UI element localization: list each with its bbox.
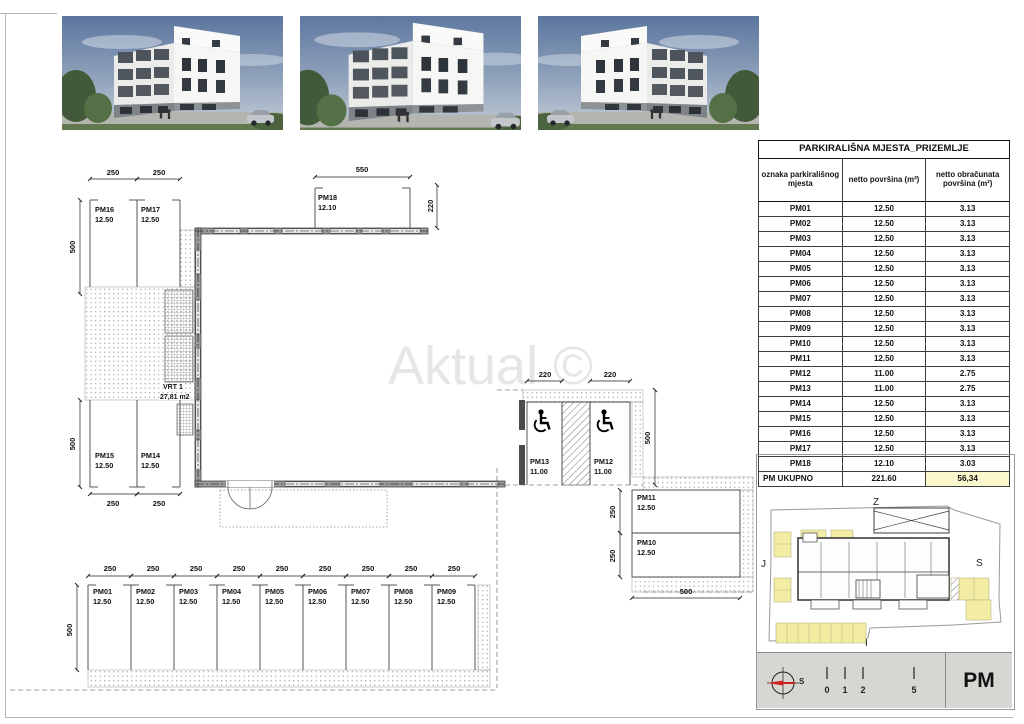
table-row: PM1112.503.13 — [759, 352, 1010, 367]
svg-text:12.10: 12.10 — [318, 203, 336, 212]
col-header-obracunata: netto obračunata površina (m²) — [926, 159, 1010, 202]
table-row: PM1311.002.75 — [759, 382, 1010, 397]
table-cell: 3.13 — [926, 337, 1010, 352]
svg-text:220: 220 — [604, 370, 617, 379]
table-cell: 12.50 — [842, 247, 926, 262]
svg-text:500: 500 — [68, 241, 77, 254]
site-plan: Z J S I — [757, 455, 1012, 652]
svg-text:PM17: PM17 — [141, 205, 160, 214]
svg-text:12.50: 12.50 — [437, 597, 455, 606]
entrance-door — [226, 481, 274, 509]
table-cell: 3.13 — [926, 352, 1010, 367]
svg-text:500: 500 — [68, 438, 77, 451]
svg-text:550: 550 — [356, 165, 369, 174]
svg-text:PM09: PM09 — [437, 587, 456, 596]
svg-text:500: 500 — [65, 624, 74, 637]
svg-text:PM12: PM12 — [594, 457, 613, 466]
table-row: PM1012.503.13 — [759, 337, 1010, 352]
table-cell: 12.50 — [842, 292, 926, 307]
table-cell: 11.00 — [842, 382, 926, 397]
table-cell: 3.13 — [926, 322, 1010, 337]
svg-text:250: 250 — [147, 564, 160, 573]
right-panel: Z J S I S 0 1 — [756, 454, 1015, 710]
svg-text:250: 250 — [107, 499, 120, 508]
svg-text:250: 250 — [362, 564, 375, 573]
table-cell: 2.75 — [926, 382, 1010, 397]
stall-lines-pm15-14 — [90, 400, 180, 487]
siteplan-building — [798, 508, 949, 609]
svg-text:VRT 1: VRT 1 — [163, 384, 183, 391]
svg-text:250: 250 — [190, 564, 203, 573]
table-cell: 12.50 — [842, 262, 926, 277]
table-cell: 12.50 — [842, 352, 926, 367]
table-cell: 12.50 — [842, 232, 926, 247]
svg-text:250: 250 — [233, 564, 246, 573]
table-cell: PM16 — [759, 427, 843, 442]
svg-text:250: 250 — [276, 564, 289, 573]
svg-text:PM10: PM10 — [637, 538, 656, 547]
table-row: PM0212.503.13 — [759, 217, 1010, 232]
table-cell: PM04 — [759, 247, 843, 262]
svg-text:PM15: PM15 — [95, 451, 114, 460]
svg-text:250: 250 — [153, 168, 166, 177]
table-cell: PM05 — [759, 262, 843, 277]
table-cell: PM09 — [759, 322, 843, 337]
svg-text:12.50: 12.50 — [141, 215, 159, 224]
svg-text:12.50: 12.50 — [95, 215, 113, 224]
sheet-code: PM — [946, 653, 1012, 708]
svg-text:250: 250 — [608, 550, 617, 563]
table-row: PM0412.503.13 — [759, 247, 1010, 262]
svg-text:250: 250 — [107, 168, 120, 177]
table-cell: 3.13 — [926, 202, 1010, 217]
svg-text:12.50: 12.50 — [308, 597, 326, 606]
table-cell: 3.13 — [926, 412, 1010, 427]
table-cell: PM03 — [759, 232, 843, 247]
svg-text:500: 500 — [680, 587, 693, 596]
svg-text:500: 500 — [643, 432, 652, 445]
svg-text:PM02: PM02 — [136, 587, 155, 596]
table-title: PARKIRALIŠNA MJESTA_PRIZEMLJE — [759, 141, 1010, 159]
svg-text:J: J — [761, 559, 766, 570]
table-row: PM1211.002.75 — [759, 367, 1010, 382]
svg-text:12.50: 12.50 — [637, 503, 655, 512]
svg-text:12.50: 12.50 — [351, 597, 369, 606]
table-cell: 3.13 — [926, 262, 1010, 277]
svg-text:PM06: PM06 — [308, 587, 327, 596]
table-row: PM0312.503.13 — [759, 232, 1010, 247]
svg-text:250: 250 — [153, 499, 166, 508]
table-row: PM0712.503.13 — [759, 292, 1010, 307]
svg-text:250: 250 — [104, 564, 117, 573]
svg-text:PM18: PM18 — [318, 193, 337, 202]
svg-text:250: 250 — [608, 506, 617, 519]
table-cell: 12.50 — [842, 427, 926, 442]
svg-text:PM13: PM13 — [530, 457, 549, 466]
table-row: PM0912.503.13 — [759, 322, 1010, 337]
svg-text:11.00: 11.00 — [594, 467, 612, 476]
svg-text:12.50: 12.50 — [93, 597, 111, 606]
table-cell: 3.13 — [926, 307, 1010, 322]
svg-text:12.50: 12.50 — [179, 597, 197, 606]
table-cell: PM15 — [759, 412, 843, 427]
watermark: Aktual © — [388, 336, 593, 396]
table-cell: 12.50 — [842, 322, 926, 337]
svg-text:12.50: 12.50 — [141, 461, 159, 470]
svg-text:250: 250 — [448, 564, 461, 573]
svg-text:250: 250 — [405, 564, 418, 573]
table-row: PM1412.503.13 — [759, 397, 1010, 412]
table-cell: PM10 — [759, 337, 843, 352]
svg-text:250: 250 — [319, 564, 332, 573]
table-row: PM0112.503.13 — [759, 202, 1010, 217]
table-cell: 12.50 — [842, 277, 926, 292]
table-row: PM1612.503.13 — [759, 427, 1010, 442]
svg-text:PM05: PM05 — [265, 587, 284, 596]
table-cell: 12.50 — [842, 307, 926, 322]
svg-text:12.50: 12.50 — [637, 548, 655, 557]
compass-north-label: S — [799, 677, 804, 686]
table-row: PM0612.503.13 — [759, 277, 1010, 292]
table-cell: PM11 — [759, 352, 843, 367]
table-cell: PM01 — [759, 202, 843, 217]
svg-text:0: 0 — [824, 685, 829, 695]
table-cell: 3.13 — [926, 232, 1010, 247]
wheelchair-icon-pm12 — [598, 409, 613, 431]
table-cell: 3.13 — [926, 247, 1010, 262]
scale-bar: 0 1 2 5 — [809, 659, 945, 703]
table-cell: 12.50 — [842, 202, 926, 217]
svg-text:11.00: 11.00 — [530, 467, 548, 476]
parking-table: PARKIRALIŠNA MJESTA_PRIZEMLJE oznaka par… — [758, 140, 1010, 487]
svg-text:PM07: PM07 — [351, 587, 370, 596]
svg-text:12.50: 12.50 — [394, 597, 412, 606]
table-cell: 3.13 — [926, 277, 1010, 292]
svg-text:5: 5 — [911, 685, 916, 695]
svg-text:PM11: PM11 — [637, 493, 656, 502]
col-header-oznaka: oznaka parkirališnog mjesta — [759, 159, 843, 202]
svg-text:27,81 m2: 27,81 m2 — [160, 394, 190, 401]
svg-text:Z: Z — [873, 497, 879, 508]
svg-text:220: 220 — [426, 200, 435, 213]
table-cell: PM08 — [759, 307, 843, 322]
table-row: PM0812.503.13 — [759, 307, 1010, 322]
table-cell: PM12 — [759, 367, 843, 382]
svg-text:PM01: PM01 — [93, 587, 112, 596]
table-row: PM1512.503.13 — [759, 412, 1010, 427]
table-cell: 3.13 — [926, 397, 1010, 412]
svg-text:PM16: PM16 — [95, 205, 114, 214]
table-cell: 12.50 — [842, 412, 926, 427]
col-header-netto: netto površina (m²) — [842, 159, 926, 202]
table-cell: 11.00 — [842, 367, 926, 382]
table-cell: 3.13 — [926, 217, 1010, 232]
table-cell: PM13 — [759, 382, 843, 397]
table-cell: 2.75 — [926, 367, 1010, 382]
svg-text:PM04: PM04 — [222, 587, 242, 596]
table-row: PM0512.503.13 — [759, 262, 1010, 277]
svg-text:S: S — [976, 558, 983, 569]
planter-boxes — [165, 290, 193, 435]
table-cell: 12.50 — [842, 217, 926, 232]
table-cell: PM07 — [759, 292, 843, 307]
table-cell: 12.50 — [842, 337, 926, 352]
wheelchair-icon-pm13 — [535, 409, 550, 431]
svg-text:12.50: 12.50 — [222, 597, 240, 606]
table-cell: PM02 — [759, 217, 843, 232]
svg-text:1: 1 — [842, 685, 847, 695]
table-cell: 3.13 — [926, 292, 1010, 307]
svg-text:12.50: 12.50 — [136, 597, 154, 606]
svg-text:220: 220 — [539, 370, 552, 379]
table-cell: PM14 — [759, 397, 843, 412]
svg-text:12.50: 12.50 — [265, 597, 283, 606]
drawing-sheet: Aktual © — [0, 0, 1024, 724]
svg-text:2: 2 — [860, 685, 865, 695]
svg-text:PM14: PM14 — [141, 451, 161, 460]
table-cell: PM06 — [759, 277, 843, 292]
svg-text:PM03: PM03 — [179, 587, 198, 596]
svg-text:I: I — [865, 638, 868, 649]
svg-text:PM08: PM08 — [394, 587, 413, 596]
table-cell: 3.13 — [926, 427, 1010, 442]
title-block: S 0 1 2 5 PM — [757, 652, 1012, 708]
table-cell: 12.50 — [842, 397, 926, 412]
svg-text:12.50: 12.50 — [95, 461, 113, 470]
parking-table-body: PM0112.503.13PM0212.503.13PM0312.503.13P… — [759, 202, 1010, 472]
